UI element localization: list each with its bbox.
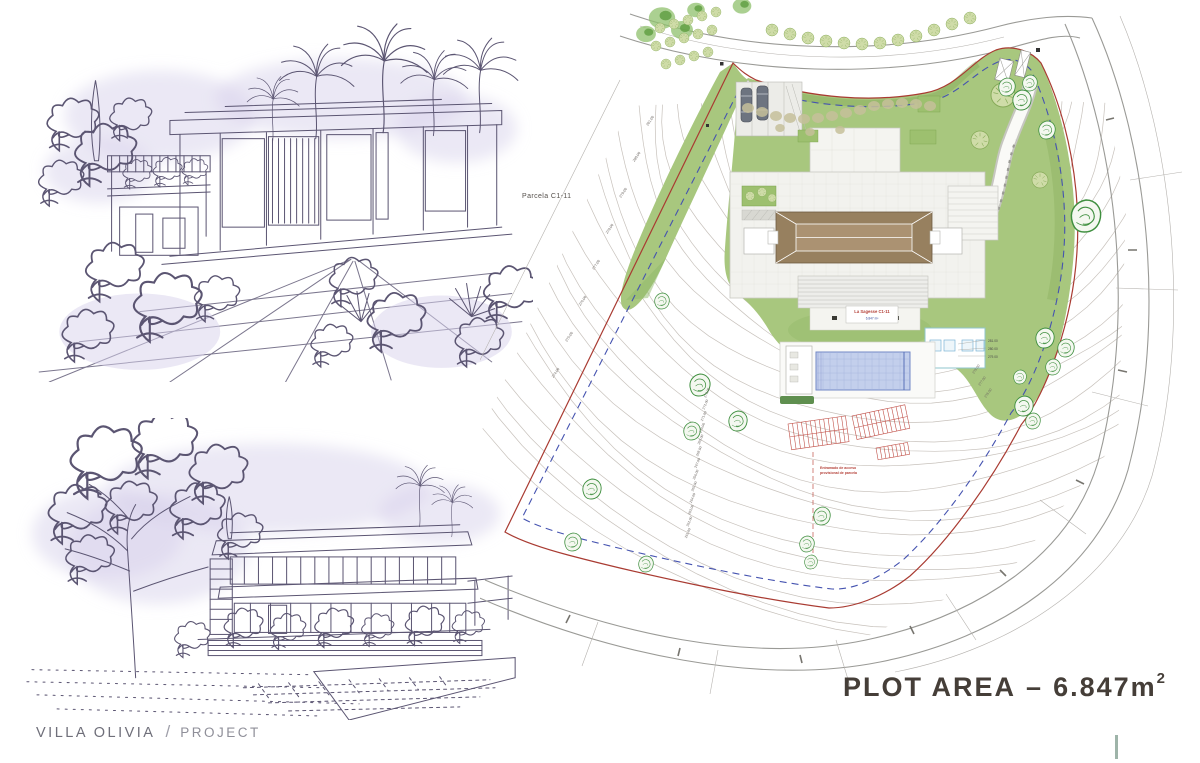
svg-text:277.00: 277.00 [592,259,601,270]
accent-tick-mark [1115,735,1118,759]
svg-text:274.00: 274.00 [551,367,560,378]
pool-level-labels: 281.00280.00279.00 [988,339,998,359]
divider-slash: / [165,722,170,742]
svg-text:281.00: 281.00 [646,115,655,126]
svg-text:266.00: 266.00 [692,469,700,480]
hatch-note-line2: provisional de parcela [820,471,857,475]
project-name: VILLA OLIVIA [36,725,155,741]
villa-side-sketch-svg [16,418,516,720]
svg-text:279.00: 279.00 [988,355,998,359]
parcel-label: Parcela C1-11 [522,193,571,200]
svg-text:280.00: 280.00 [988,347,998,351]
villa-front-sketch [18,20,533,382]
svg-text:272.00: 272.00 [702,399,710,410]
plot-area-value: 6.847m [1053,672,1157,703]
svg-text:280.00: 280.00 [632,151,641,162]
svg-text:281.00: 281.00 [988,339,998,343]
foreground-lawn [27,606,515,720]
plot-tag-line2: 6.847 m² [866,317,879,321]
plot-area-text: PLOT AREA – 6.847m 2 [843,672,1167,703]
footer-caption: VILLA OLIVIA / PROJECT [36,722,261,742]
svg-text:279.00: 279.00 [619,187,628,198]
site-plan: La Sagesse C1-11 6.847 m² [480,0,1200,695]
plot-area-superscript: 2 [1157,670,1167,687]
site-plan-svg: La Sagesse C1-11 6.847 m² [480,0,1200,695]
villa-front-sketch-svg [18,20,533,382]
hatch-note-line1: Entramado de acceso [820,466,856,470]
svg-text:263.00: 263.00 [687,504,695,515]
plot-tag-line1: La Sagesse C1-11 [854,309,890,314]
foreground-planting [59,243,533,370]
svg-text:267.00: 267.00 [694,457,702,468]
svg-text:275.00: 275.00 [565,331,574,342]
svg-text:268.00: 268.00 [695,446,703,457]
svg-text:262.00: 262.00 [686,516,694,527]
svg-text:278.00: 278.00 [605,223,614,234]
svg-text:265.00: 265.00 [690,481,698,492]
svg-text:264.00: 264.00 [689,492,697,503]
plot-area-dash: – [1026,672,1043,703]
svg-text:271.00: 271.00 [700,411,708,422]
svg-text:261.00: 261.00 [684,528,692,539]
plot-area-label: PLOT AREA [843,672,1016,703]
section-label: PROJECT [180,725,261,740]
villa-side-sketch [16,418,516,720]
svg-text:276.00: 276.00 [578,295,587,306]
presentation-page: La Sagesse C1-11 6.847 m² [0,0,1200,763]
